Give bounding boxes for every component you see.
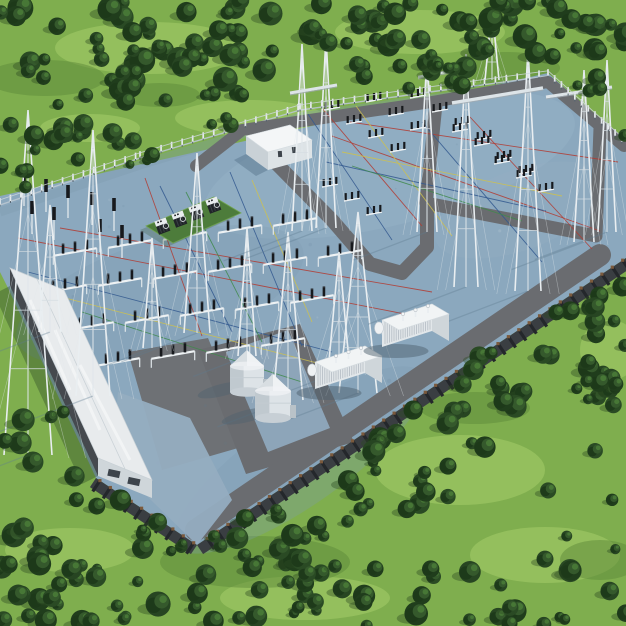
- fence-post: [473, 79, 475, 86]
- fence-post-base: [104, 169, 105, 171]
- tree-highlight: [214, 89, 219, 94]
- insulator-cap: [244, 297, 247, 298]
- insulator: [174, 266, 177, 275]
- tree-highlight: [414, 404, 420, 410]
- tree-highlight: [463, 79, 468, 84]
- wall-post-cap: [192, 541, 195, 544]
- tree-highlight: [97, 570, 103, 576]
- fence-post: [547, 69, 549, 76]
- tree-highlight: [499, 378, 504, 383]
- fence-post-base: [203, 139, 204, 141]
- tree-highlight: [41, 537, 46, 542]
- insulator-cap: [189, 303, 192, 304]
- tank-base: [255, 413, 291, 423]
- tree-highlight: [432, 51, 436, 55]
- tree-highlight: [318, 519, 324, 525]
- tree-highlight: [501, 581, 505, 585]
- insulator: [391, 144, 393, 151]
- tree-highlight: [121, 493, 127, 499]
- insulator: [268, 294, 271, 303]
- fence-post-base: [517, 80, 518, 82]
- tree-highlight: [560, 30, 563, 33]
- fence-post-base: [213, 135, 214, 137]
- wall-post-cap: [351, 439, 354, 442]
- insulator-cap: [119, 271, 122, 272]
- fence-post-base: [41, 190, 42, 192]
- fence-post-base: [376, 99, 377, 101]
- tree-highlight: [544, 348, 550, 354]
- tree-highlight: [611, 21, 615, 25]
- insulator: [481, 137, 483, 144]
- fence-post-base: [93, 173, 94, 175]
- fence-post: [527, 72, 529, 79]
- fence-post: [419, 87, 421, 94]
- wall-post-cap: [341, 446, 344, 449]
- fence-post-base: [387, 97, 388, 99]
- tree-highlight: [77, 495, 81, 499]
- tree-highlight: [526, 28, 533, 35]
- pad-speckle: [395, 188, 397, 190]
- tree-highlight: [58, 20, 63, 25]
- tree-highlight: [41, 556, 48, 563]
- tree-highlight: [471, 565, 478, 572]
- tree-highlight: [17, 9, 23, 15]
- tree-highlight: [26, 183, 30, 187]
- insulator: [141, 232, 144, 241]
- wall-post-cap: [600, 273, 603, 276]
- insulator: [112, 198, 116, 211]
- wall-post-cap: [413, 398, 416, 401]
- wall-post-cap: [268, 495, 271, 498]
- tree-highlight: [600, 375, 606, 381]
- tree-highlight: [455, 64, 459, 68]
- tree-highlight: [82, 561, 86, 565]
- wall-post-cap: [580, 286, 583, 289]
- insulator-cap: [299, 290, 302, 291]
- tree-highlight: [614, 399, 619, 404]
- tree-highlight: [558, 1, 564, 7]
- tree-highlight: [571, 304, 577, 310]
- tree-highlight: [2, 8, 6, 12]
- insulator: [507, 154, 509, 161]
- tree-highlight: [449, 416, 456, 423]
- door: [278, 151, 282, 157]
- insulator: [272, 254, 275, 263]
- pad-speckle: [498, 229, 501, 232]
- insulator: [367, 207, 369, 214]
- insulator: [369, 130, 371, 137]
- tree-highlight: [596, 445, 601, 450]
- insulator: [417, 89, 419, 96]
- tree-highlight: [214, 614, 220, 620]
- tree-highlight: [396, 6, 403, 13]
- insulator: [483, 131, 485, 138]
- fence-post-base: [354, 102, 355, 104]
- tree-highlight: [397, 427, 403, 433]
- tree-highlight: [135, 67, 140, 72]
- insulator: [327, 247, 330, 256]
- insulator: [379, 205, 381, 212]
- insulator: [299, 292, 302, 301]
- tree-highlight: [348, 517, 352, 521]
- tree-highlight: [600, 289, 605, 294]
- wall-post-cap: [330, 453, 333, 456]
- tree-highlight: [589, 357, 594, 362]
- tank-platform: [290, 405, 296, 418]
- fence-post-base: [332, 105, 333, 107]
- tree-highlight: [361, 504, 365, 508]
- tree-highlight: [449, 491, 454, 496]
- tree-highlight: [474, 363, 480, 369]
- insulator-cap: [201, 301, 204, 302]
- insulator-cap: [131, 269, 134, 270]
- insulator: [545, 183, 547, 190]
- fence-post: [429, 85, 431, 92]
- tree-highlight: [422, 33, 428, 39]
- insulator: [459, 123, 461, 130]
- wall-post-cap: [434, 384, 437, 387]
- insulator-cap: [134, 310, 137, 311]
- fence-post-base: [31, 194, 32, 196]
- tree-highlight: [375, 444, 382, 451]
- fence-post-base: [568, 94, 569, 96]
- tree-highlight: [227, 71, 234, 78]
- tree-highlight: [313, 22, 318, 27]
- tree-highlight: [486, 440, 492, 446]
- tree-highlight: [306, 534, 310, 538]
- tree-highlight: [545, 619, 549, 623]
- tree-highlight: [54, 539, 60, 545]
- tree-highlight: [118, 602, 122, 606]
- tree-highlight: [35, 129, 41, 135]
- insulator-cap: [296, 248, 299, 249]
- tree-highlight: [134, 135, 139, 140]
- tree-highlight: [384, 2, 388, 6]
- tree-highlight: [302, 552, 308, 558]
- tree-highlight: [214, 40, 220, 46]
- forest-tree: [0, 555, 18, 573]
- tree-highlight: [365, 596, 370, 601]
- tank-rim: [230, 362, 264, 371]
- wall-post-cap: [226, 523, 229, 526]
- fence-post-base: [430, 92, 431, 94]
- insulator-cap: [323, 286, 326, 287]
- insulator: [509, 150, 511, 157]
- tree-highlight: [149, 20, 154, 25]
- tree-highlight: [259, 557, 263, 561]
- conservator: [375, 322, 384, 334]
- tree-highlight: [572, 564, 578, 570]
- tree-highlight: [24, 412, 31, 419]
- insulator: [162, 268, 165, 277]
- tree-highlight: [356, 485, 362, 491]
- insulator: [131, 270, 134, 279]
- tree-highlight: [246, 512, 251, 517]
- bushing: [334, 354, 337, 357]
- tree-highlight: [455, 405, 461, 411]
- tree-highlight: [409, 84, 413, 88]
- tank-rim: [255, 386, 291, 395]
- insulator: [66, 185, 70, 198]
- tree-highlight: [587, 17, 593, 23]
- tree-highlight: [159, 42, 163, 46]
- insulator: [487, 136, 489, 143]
- insulator-cap: [74, 241, 77, 242]
- insulator: [129, 235, 132, 244]
- tree-highlight: [159, 516, 165, 522]
- insulator-cap: [184, 342, 187, 343]
- insulator: [189, 305, 192, 314]
- tree-highlight: [240, 613, 244, 617]
- insulator: [213, 300, 216, 309]
- tree-highlight: [510, 618, 515, 623]
- fence-post-base: [298, 110, 299, 112]
- tree-highlight: [144, 52, 152, 60]
- insulator-cap: [294, 211, 297, 212]
- insulator-cap: [213, 299, 216, 300]
- tree-highlight: [516, 399, 523, 406]
- insulator: [119, 273, 122, 282]
- insulator: [184, 343, 187, 352]
- insulator: [251, 217, 254, 226]
- tree-highlight: [153, 150, 158, 155]
- tree-highlight: [125, 614, 129, 618]
- tree-highlight: [21, 435, 28, 442]
- fence-post: [321, 100, 323, 107]
- insulator: [379, 92, 381, 99]
- fence-post-base: [161, 151, 162, 153]
- insulator-cap: [117, 351, 120, 352]
- insulator: [489, 130, 491, 137]
- tree-highlight: [187, 5, 193, 11]
- wall-post-cap: [538, 314, 541, 317]
- insulator: [455, 118, 457, 125]
- insulator-cap: [64, 278, 67, 279]
- insulator: [296, 249, 299, 258]
- wall-post-cap: [309, 467, 312, 470]
- fence-post-base: [588, 112, 589, 114]
- tree-highlight: [134, 46, 138, 50]
- tree-highlight: [133, 25, 139, 31]
- tree-highlight: [114, 126, 120, 132]
- wall-post-cap: [171, 527, 174, 530]
- tree-highlight: [611, 585, 617, 591]
- fence-post: [505, 75, 507, 82]
- insulator-cap: [251, 216, 254, 217]
- container-shadow: [364, 344, 429, 358]
- insulator: [373, 206, 375, 213]
- fence-post: [310, 102, 312, 109]
- tree-highlight: [183, 540, 186, 543]
- fence-post-base: [224, 132, 225, 134]
- bushing: [359, 346, 362, 349]
- insulator-cap: [217, 259, 220, 260]
- tree-highlight: [92, 615, 97, 620]
- tree-highlight: [253, 561, 259, 567]
- tree-highlight: [232, 47, 239, 54]
- insulator: [503, 151, 505, 158]
- fence-post-base: [10, 201, 11, 203]
- fence-post: [484, 78, 486, 85]
- insulator: [453, 124, 455, 131]
- tree-highlight: [488, 45, 492, 49]
- fence-post-base: [276, 116, 277, 118]
- fence-post-base: [171, 148, 172, 150]
- wall-post-cap: [320, 460, 323, 463]
- tree-highlight: [45, 55, 49, 59]
- tree-highlight: [29, 66, 34, 71]
- fence-post-base: [343, 103, 344, 105]
- tree-highlight: [260, 584, 265, 589]
- tree-highlight: [470, 615, 474, 619]
- fence-post-base: [561, 88, 562, 90]
- wall-post-cap: [98, 479, 101, 482]
- fence-post-base: [581, 106, 582, 108]
- insulator-cap: [227, 220, 230, 221]
- insulator: [134, 312, 137, 321]
- tree-highlight: [321, 30, 325, 34]
- insulator: [445, 102, 447, 109]
- tree-highlight: [19, 588, 25, 594]
- tree-highlight: [195, 36, 201, 42]
- insulator: [160, 348, 163, 357]
- insulator-cap: [162, 266, 165, 267]
- insulator: [241, 256, 244, 265]
- pad-speckle: [456, 143, 458, 145]
- pad-speckle: [387, 379, 391, 383]
- fence-post: [538, 70, 540, 77]
- tree-highlight: [349, 473, 355, 479]
- fence-post-base: [310, 108, 311, 110]
- tree-highlight: [612, 372, 618, 378]
- insulator: [495, 156, 497, 163]
- tree-highlight: [75, 469, 81, 475]
- tree-highlight: [587, 376, 591, 380]
- fence-post-base: [72, 180, 73, 182]
- insulator-cap: [311, 288, 314, 289]
- insulator: [215, 342, 218, 351]
- insulator-cap: [227, 338, 230, 339]
- tree-highlight: [97, 34, 101, 38]
- insulator: [433, 104, 435, 111]
- wall-post-cap: [109, 486, 112, 489]
- tree-highlight: [102, 54, 107, 59]
- insulator-cap: [215, 340, 218, 341]
- conservator: [308, 364, 317, 376]
- fence-post: [365, 94, 367, 101]
- tree-highlight: [166, 96, 170, 100]
- insulator-cap: [129, 233, 132, 234]
- tree-highlight: [294, 528, 301, 535]
- substation-aerial-render: [0, 0, 626, 626]
- insulator-cap: [62, 243, 65, 244]
- wall-post-cap: [299, 474, 302, 477]
- tree-highlight: [53, 592, 58, 597]
- fence-post-base: [245, 126, 246, 128]
- insulator: [477, 132, 479, 139]
- tree-highlight: [245, 551, 249, 555]
- insulator: [395, 107, 397, 114]
- fence-post: [343, 97, 345, 104]
- insulator: [403, 142, 405, 149]
- tree-highlight: [469, 16, 474, 21]
- fence-post-base: [548, 76, 549, 78]
- fence-post-base: [300, 110, 301, 112]
- tree-highlight: [376, 563, 381, 568]
- fence-post: [495, 76, 497, 83]
- render-canvas: [0, 0, 626, 626]
- tree-highlight: [277, 506, 281, 510]
- tree-highlight: [44, 73, 48, 77]
- insulator: [501, 155, 503, 162]
- container-shadow: [297, 386, 362, 400]
- insulator: [497, 152, 499, 159]
- tree-highlight: [207, 568, 213, 574]
- tree-highlight: [577, 44, 580, 47]
- pad-speckle: [316, 316, 318, 318]
- tree-highlight: [347, 39, 351, 43]
- insulator: [523, 169, 525, 176]
- tree-highlight: [546, 553, 551, 558]
- pad-speckle: [308, 243, 312, 247]
- insulator: [353, 115, 355, 122]
- tree-highlight: [472, 32, 477, 37]
- fence-post-base: [0, 205, 1, 207]
- insulator: [172, 346, 175, 355]
- wall-post-cap: [140, 507, 143, 510]
- insulator-cap: [174, 264, 177, 265]
- tree-highlight: [273, 47, 277, 51]
- fence-post: [299, 103, 301, 110]
- pad-speckle: [108, 199, 111, 202]
- tree-highlight: [221, 541, 225, 545]
- wall-post-cap: [361, 432, 364, 435]
- tree-highlight: [227, 114, 231, 118]
- wall-post-cap: [278, 488, 281, 491]
- tree-highlight: [130, 161, 133, 164]
- fence-post-base: [440, 90, 441, 92]
- insulator: [120, 225, 124, 238]
- tree-highlight: [34, 455, 40, 461]
- insulator: [306, 210, 309, 219]
- tree-highlight: [427, 485, 433, 491]
- insulator: [381, 128, 383, 135]
- tree-highlight: [423, 589, 429, 595]
- tree-highlight: [27, 166, 32, 171]
- insulator: [551, 182, 553, 189]
- tree-highlight: [143, 526, 146, 529]
- tree-highlight: [343, 582, 349, 588]
- tree-highlight: [308, 567, 313, 572]
- fence-post-base: [20, 197, 21, 199]
- tree-highlight: [132, 80, 138, 86]
- tree-highlight: [367, 622, 371, 626]
- tree-highlight: [64, 127, 70, 133]
- pad-speckle: [122, 205, 124, 207]
- tree-highlight: [432, 563, 437, 568]
- tree-highlight: [47, 613, 54, 620]
- tree-highlight: [572, 12, 578, 18]
- insulator-cap: [117, 235, 120, 236]
- tree-highlight: [25, 521, 31, 527]
- tree-highlight: [127, 95, 133, 101]
- fence-post-base: [484, 84, 485, 86]
- insulator: [323, 287, 326, 296]
- insulator-cap: [268, 293, 271, 294]
- tree-highlight: [123, 9, 130, 16]
- tree-highlight: [228, 8, 232, 12]
- tree-highlight: [124, 67, 129, 72]
